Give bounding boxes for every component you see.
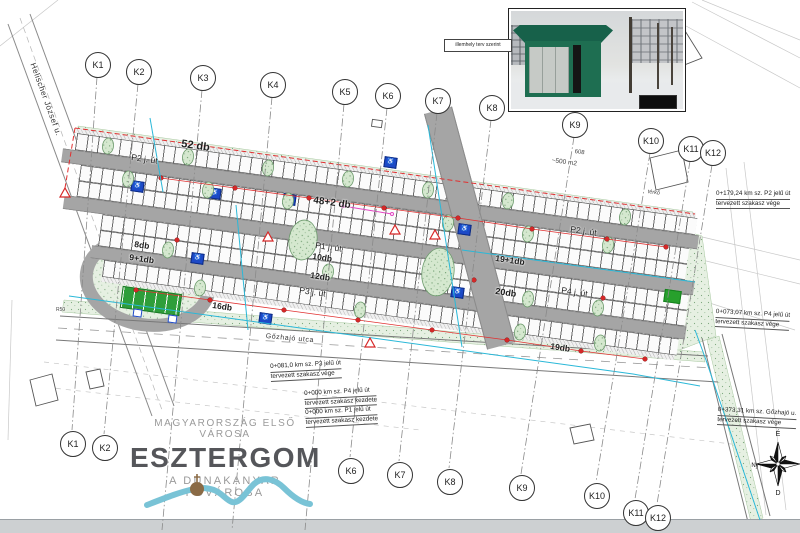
parking-count-c1-left: 8db: [134, 240, 150, 251]
k-marker-top-3: K3: [190, 65, 216, 91]
annotation-line: 0+179,24 km sz. P2 jelű út: [716, 190, 790, 200]
sheet-bottom-strip: [0, 519, 800, 533]
wheelchair-glyph: ♿: [261, 315, 269, 322]
wheelchair-icon: ♿: [207, 187, 221, 200]
k-marker-top-4: K4: [260, 72, 286, 98]
k-marker-bottom-6: K6: [338, 458, 364, 484]
parking-count-c-mid1: 10db: [312, 252, 333, 263]
wheelchair-glyph: ♿: [453, 289, 461, 296]
wheelchair-icon: ♿: [258, 312, 272, 325]
tree-trunk: [657, 23, 659, 89]
k-marker-bottom-8: K8: [437, 469, 463, 495]
annotation-p3-end: 0+081,0 km sz. P3 jelű út tervezett szak…: [270, 359, 342, 382]
parking-count-c-mid2: 12db: [310, 271, 331, 282]
site-plan-sheet: ♿ ♿ ♿ ♿ ♿ ♿ ♿ ♿: [0, 0, 800, 533]
k-marker-top-10: K10: [638, 128, 664, 154]
wheelchair-icon: ♿: [282, 193, 296, 206]
k-marker-top-1: K1: [85, 52, 111, 78]
k-marker-top-12: K12: [700, 140, 726, 166]
k-marker-bottom-2: K2: [92, 435, 118, 461]
wheelchair-glyph: ♿: [193, 255, 201, 262]
annotation-p4-end: 0+073,07 km sz. P4 jelű út tervezett sza…: [715, 308, 790, 331]
parking-count-d-right: 19db: [550, 342, 571, 353]
k-marker-top-5: K5: [332, 79, 358, 105]
kiosk-photo: [511, 11, 683, 109]
k-marker-bottom-10: K10: [584, 483, 610, 509]
photo-inset-kiosk: [508, 8, 686, 112]
k-marker-top-7: K7: [425, 88, 451, 114]
tree-trunk: [629, 17, 632, 93]
compass-north-label: É: [776, 429, 781, 438]
annotation-line: tervezett szakasz vége: [716, 200, 790, 210]
wheelchair-glyph: ♿: [460, 226, 468, 233]
k-marker-bottom-1: K1: [60, 431, 86, 457]
photo-sign-black: [639, 95, 677, 109]
k-marker-bottom-12: K12: [645, 505, 671, 531]
logo-city-name: ESZTERGOM: [130, 442, 320, 474]
k-marker-top-2: K2: [126, 59, 152, 85]
terko-label: térkő: [647, 190, 660, 197]
kiosk-body: [525, 41, 601, 97]
logo-tagline-top: MAGYARORSZÁG ELSŐ VÁROSA: [130, 418, 320, 440]
wheelchair-icon: ♿: [457, 223, 471, 236]
r50-label: R50: [56, 308, 65, 313]
wheelchair-glyph: ♿: [285, 196, 293, 203]
wheelchair-icon: ♿: [130, 180, 144, 193]
blue-square-marker: [167, 314, 177, 323]
area-label: ~500 m2: [551, 158, 577, 168]
logo-tagline-bottom: A DUNAKANYAR FŐVÁROSA: [130, 475, 320, 499]
wheelchair-icon: ♿: [450, 286, 464, 299]
wheelchair-glyph: ♿: [133, 183, 141, 190]
k-marker-top-6: K6: [375, 83, 401, 109]
wheelchair-icon: ♿: [383, 156, 397, 169]
k-marker-bottom-7: K7: [387, 462, 413, 488]
kiosk-info-panel: [573, 45, 581, 93]
parcel-number-608: 608: [574, 149, 585, 156]
blue-square-marker: [132, 308, 142, 317]
k-marker-top-9: K9: [562, 112, 588, 138]
compass-west-label: Ny: [751, 463, 758, 469]
wheelchair-glyph: ♿: [210, 190, 218, 197]
k-marker-top-8: K8: [479, 95, 505, 121]
compass-rose: É K D Ny: [750, 426, 800, 498]
wheelchair-glyph: ♿: [386, 159, 394, 166]
annotation-p2-end: 0+179,24 km sz. P2 jelű út tervezett sza…: [716, 190, 790, 209]
street-label-gozhajo: Gőzhajó utca: [265, 333, 314, 344]
wheelchair-icon: ♿: [190, 252, 204, 265]
green-marker-rect: [663, 289, 682, 304]
kiosk-door-panels: [529, 47, 569, 93]
esztergom-logo: MAGYARORSZÁG ELSŐ VÁROSA ESZTERGOM A DUN…: [130, 418, 320, 499]
annotation-gozhajo-end: 0+373,31 km sz. Gőzhajó u. tervezett sza…: [717, 406, 796, 429]
k-marker-bottom-9: K9: [509, 475, 535, 501]
compass-south-label: D: [775, 490, 780, 497]
photo-callout-label: illemhely terv szerint: [444, 39, 512, 52]
tree-trunk: [671, 27, 673, 85]
street-label-helischer: Helischer József u.: [28, 62, 62, 137]
parking-count-d-left: 16db: [212, 301, 233, 312]
